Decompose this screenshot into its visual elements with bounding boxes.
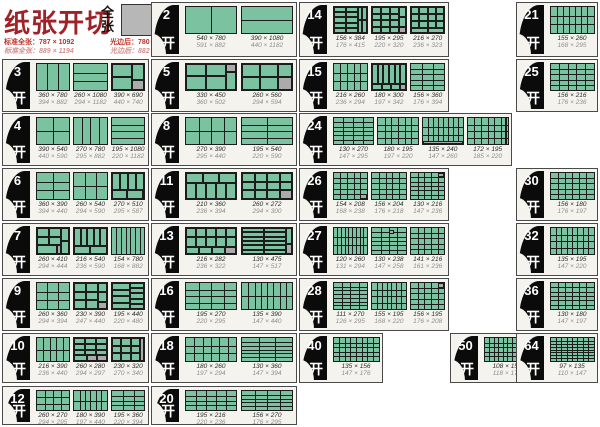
kai-number: 26 [302,173,327,188]
diagram-column: 260 × 360294 × 394 [34,282,72,325]
diagram-column: 180 × 300197 × 342 [370,63,409,106]
sheet-piece [186,183,196,199]
sheet-piece [411,28,428,33]
cut-diagram [111,337,146,362]
cut-diagram [111,63,146,91]
kai-number-label: 24开 [302,116,327,163]
size-standard: 195 × 540 [239,146,295,153]
diagram-column: 270 × 510295 × 587 [109,172,147,215]
cut-diagram [241,227,293,255]
diagram-column: 135 × 240147 × 260 [421,117,466,160]
size-standard: 156 × 270 [239,412,295,419]
cell-25kai: 25开156 × 216176 × 236 [516,59,598,112]
size-large: 236 × 323 [408,42,447,49]
kai-character: 开 [12,401,26,421]
size-large: 591 × 882 [183,42,239,49]
size-large: 220 × 295 [183,318,239,325]
sheet-piece [49,228,61,237]
cut-diagram [185,6,237,34]
kai-number: 36 [519,283,544,298]
cut-diagram [550,227,595,255]
sheet-piece [216,228,226,237]
size-large: 147 × 260 [421,153,466,160]
kai-number-label: 15开 [302,62,327,109]
kai-character: 开 [526,359,540,379]
sheet-piece [362,20,367,33]
cell-21kai: 21开155 × 260168 × 295 [516,2,598,57]
sheet-piece [203,173,220,183]
kai-character: 开 [12,197,26,217]
cut-diagram [185,63,237,91]
size-standard: 195 × 440 [109,311,147,318]
size-large: 294 × 297 [72,370,110,377]
kai-number: 9 [5,283,30,298]
size-large: 220 × 1182 [109,153,147,160]
cut-diagram [73,117,108,145]
diagram-column: 216 × 282236 × 322 [183,227,239,270]
size-large: 126 × 295 [331,318,370,325]
size-large: 161 × 236 [408,263,447,270]
waste-piece [438,173,445,177]
cell-64kai: 64开97 × 135110 × 147 [516,333,598,383]
cut-diagram [377,117,419,145]
sheet-piece [399,17,405,27]
waste-piece [143,190,145,199]
cut-diagram [410,227,446,255]
sheet-piece [86,300,98,309]
sheet-piece [98,292,107,301]
kai-number: 16 [154,283,179,298]
cut-diagram [550,172,595,200]
sheet-piece [255,182,268,191]
kai-number-label: 7开 [5,226,30,273]
size-standard: 216 × 260 [331,92,370,99]
kai-number: 21 [519,7,544,22]
cut-diagram [333,337,380,362]
sheet-piece [255,190,268,199]
size-large: 294 × 1182 [72,99,110,106]
kai-number-label: 40开 [302,336,327,380]
sheet-piece [112,346,121,354]
size-standard: 135 × 240 [421,146,466,153]
diagram-column: 130 × 180147 × 197 [548,282,596,325]
kai-character: 开 [309,252,323,272]
size-large: 176 × 218 [370,208,409,215]
sheet-piece [436,7,444,14]
sheet-piece [346,28,358,33]
size-large: 294 × 295 [34,419,72,426]
sheet-piece [264,250,286,254]
diagram-column: 97 × 135110 × 147 [548,337,596,377]
diagram-column: 195 × 360220 × 394 [109,390,147,426]
kai-character: 开 [309,197,323,217]
sheet-piece [206,76,226,90]
sheet-piece [90,246,106,254]
diagram-column: 130 × 270147 × 295 [331,117,376,160]
size-standard: 216 × 270 [408,35,447,42]
size-large: 110 × 147 [548,370,596,377]
kai-character: 开 [309,307,323,327]
cut-diagram [467,117,509,145]
sheet-piece [280,173,293,182]
sheet-piece [131,353,140,361]
cut-diagram [241,172,293,200]
size-large: 440 × 590 [34,153,72,160]
cut-diagram [73,337,108,362]
cut-diagram [111,390,146,411]
kai-character: 开 [526,252,540,272]
sheet-piece [121,353,130,361]
sheet-piece [186,76,206,90]
size-standard: 156 × 195 [408,311,447,318]
kai-character: 开 [161,88,175,108]
size-standard: 216 × 282 [183,256,239,263]
diagram-column: 390 × 690440 × 740 [109,63,147,106]
size-standard: 155 × 195 [370,311,409,318]
size-standard: 154 × 208 [331,201,370,208]
kai-number: 13 [154,228,179,243]
diagram-column: 230 × 390247 × 440 [72,282,110,325]
size-large: 185 × 220 [465,153,510,160]
cell-5kai: 5开330 × 450360 × 502260 × 560294 × 594 [151,59,297,112]
cell-32kai: 32开135 × 195147 × 220 [516,223,598,276]
cell-28kai: 28开111 × 270126 × 295155 × 195168 × 2201… [299,278,449,331]
diagram-column: 230 × 320270 × 340 [109,337,147,377]
sheet-piece [37,228,49,237]
diagram-column: 155 × 195168 × 220 [370,282,409,325]
diagram-column: 141 × 216161 × 236 [408,227,447,270]
sheet-piece [199,247,212,254]
size-standard: 156 × 204 [370,201,409,208]
size-large: 147 × 295 [331,153,376,160]
size-large: 168 × 882 [109,263,147,270]
kai-character: 开 [12,142,26,162]
diagram-column: 260 × 272294 × 300 [239,172,295,215]
cut-diagram [36,282,71,310]
sheet-piece [226,237,236,246]
sheet-piece [267,190,280,199]
sheet-piece [74,246,90,254]
sheet-piece [226,228,236,237]
size-standard: 260 × 560 [239,92,295,99]
waste-piece [400,84,405,90]
size-standard: 260 × 272 [239,201,295,208]
cut-diagram [36,117,71,145]
kai-character: 开 [161,359,175,379]
cut-diagram [410,172,446,200]
sheet-piece [100,228,107,246]
diagram-column: 260 × 280294 × 297 [72,337,110,377]
kai-number: 25 [519,64,544,79]
size-large: 176 × 208 [408,318,447,325]
diagram-column: 154 × 208168 × 238 [331,172,370,215]
size-standard: 195 × 1080 [109,146,147,153]
kai-character: 开 [161,142,175,162]
cell-30kai: 30开156 × 180176 × 197 [516,168,598,221]
size-standard: 230 × 320 [109,363,147,370]
diagram-column: 130 × 238147 × 258 [370,227,409,270]
sheet-piece [49,237,61,246]
kai-number: 64 [519,338,544,353]
size-standard: 360 × 390 [34,201,72,208]
cell-26kai: 26开154 × 208168 × 238156 × 204176 × 2181… [299,168,449,221]
diagram-column: 216 × 270236 × 323 [408,6,447,49]
diagram-column: 210 × 360236 × 394 [183,172,239,215]
sheet-piece [278,64,292,77]
waste-piece [97,355,107,361]
diagram-column: 156 × 360176 × 394 [408,63,447,106]
kai-character: 开 [12,359,26,379]
cut-diagram [550,282,595,310]
size-standard: 135 × 156 [331,363,381,370]
kai-character: 开 [161,307,175,327]
size-standard: 270 × 510 [109,201,147,208]
diagram-column: 135 × 195147 × 220 [548,227,596,270]
kai-character: 开 [12,88,26,108]
sheet-piece [206,183,216,199]
size-large: 360 × 502 [183,99,239,106]
waste-piece [505,118,508,144]
kai-number: 27 [302,228,327,243]
sheet-piece [206,64,226,76]
sheet-piece [112,303,130,310]
diagram-column: 270 × 390295 × 440 [183,117,239,160]
kai-number: 2 [154,7,179,22]
sheet-piece [334,28,346,33]
diagram-column: 130 × 475147 × 517 [239,227,295,270]
sheet-piece [428,21,436,28]
waste-piece [280,190,293,199]
size-standard: 330 × 450 [183,92,239,99]
size-large: 220 × 320 [370,42,409,49]
cut-diagram [73,63,108,91]
sheet-piece [196,183,206,199]
sheet-piece [121,338,130,346]
kai-number-label: 13开 [154,226,179,273]
cell-8kai: 8开270 × 390295 × 440195 × 540220 × 590 [151,113,297,166]
kai-number-label: 5开 [154,62,179,109]
sheet-piece [255,173,268,182]
cell-18kai: 18开180 × 260197 × 294130 × 360147 × 394 [151,333,297,383]
sheet-piece [436,21,444,28]
cut-diagram [36,337,71,362]
kai-number-label: 30开 [519,171,544,218]
sheet-piece [206,228,216,237]
diagram-column: 260 × 1080294 × 1182 [72,63,110,106]
kai-number-label: 26开 [302,171,327,218]
kai-number-label: 12开 [5,389,30,422]
diagram-column: 130 × 360147 × 394 [239,337,295,377]
cell-14kai: 14开156 × 384176 × 415195 × 295220 × 3202… [299,2,449,57]
cell-6kai: 6开360 × 390394 × 440260 × 540294 × 59027… [2,168,149,221]
waste-piece [225,247,236,254]
sheet-piece [186,247,199,254]
sheet-piece [391,84,400,90]
size-standard: 97 × 135 [548,363,596,370]
size-standard: 195 × 216 [183,412,239,419]
sheet-piece [382,84,391,90]
waste-piece [360,194,367,199]
size-large: 294 × 444 [34,263,72,270]
diagram-column: 390 × 540440 × 590 [34,117,72,160]
kai-number: 11 [154,173,179,188]
diagram-column: 180 × 260197 × 294 [183,337,239,377]
diagram-column: 260 × 410294 × 444 [34,227,72,270]
size-standard: 154 × 780 [109,256,147,263]
cell-11kai: 11开210 × 360236 × 394260 × 272294 × 300 [151,168,297,221]
kai-number-label: 9开 [5,281,30,328]
kai-number: 3 [5,64,30,79]
diagram-column: 135 × 156147 × 176 [331,337,381,377]
size-large: 295 × 440 [183,153,239,160]
cut-diagram [410,6,446,34]
cut-diagram [185,117,237,145]
sheet-piece [372,84,381,90]
sheet-piece [411,21,419,28]
cut-diagram [333,227,369,255]
sheet-piece [112,77,132,90]
cut-diagram [111,117,146,145]
kai-character: 开 [161,401,175,421]
size-large: 176 × 236 [548,99,596,106]
size-large: 295 × 587 [109,208,147,215]
sheet-piece [186,228,196,237]
sheet-piece [131,338,140,346]
kai-number: 7 [5,228,30,243]
size-standard: 390 × 540 [34,146,72,153]
kai-character: 开 [460,359,474,379]
diagram-column: 260 × 270294 × 295 [34,390,72,426]
kai-number: 32 [519,228,544,243]
size-large: 147 × 236 [408,208,447,215]
size-standard: 156 × 360 [408,92,447,99]
cut-diagram [333,63,369,91]
sheet-piece [74,292,86,301]
cut-diagram [371,282,407,310]
size-standard: 156 × 384 [331,35,370,42]
cell-24kai: 24开130 × 270147 × 295180 × 195197 × 2201… [299,113,512,166]
size-standard: 180 × 300 [370,92,409,99]
sheet-piece [112,190,127,199]
cut-diagram [371,63,407,91]
kai-number-label: 2开 [154,5,179,54]
size-standard: 210 × 360 [183,201,239,208]
size-standard: 130 × 270 [331,146,376,153]
size-large: 168 × 220 [370,318,409,325]
sheet-piece [136,173,144,190]
sheet-piece [260,77,278,90]
cut-diagram [371,172,407,200]
size-standard: 216 × 390 [34,363,72,370]
sheet-piece [74,283,86,292]
kai-character: 开 [526,88,540,108]
sheet-piece [419,7,427,14]
cut-diagram [371,6,407,34]
kai-number-label: 32开 [519,226,544,273]
cut-diagram [241,117,293,145]
size-standard: 172 × 195 [465,146,510,153]
kai-character: 开 [309,33,323,53]
sheet-piece [390,27,399,34]
size-large: 236 × 294 [331,99,370,106]
size-standard: 130 × 216 [408,201,447,208]
sheet-piece [242,173,255,182]
cut-diagram [333,117,375,145]
sheet-piece [120,173,128,190]
cut-diagram [333,282,369,310]
kai-number: 5 [154,64,179,79]
size-large: 147 × 220 [548,263,596,270]
cut-diagram [111,172,146,200]
size-standard: 390 × 690 [109,92,147,99]
size-large: 147 × 440 [239,318,295,325]
kai-character: 开 [309,359,323,379]
cell-3kai: 3开360 × 780394 × 882260 × 1080294 × 1182… [2,59,149,112]
size-large: 440 × 1182 [239,42,295,49]
sheet-piece [186,64,206,76]
kai-number-label: 8开 [154,116,179,163]
sheet-piece [206,237,216,246]
diagram-column: 156 × 180176 × 197 [548,172,596,215]
size-standard: 260 × 540 [72,201,110,208]
waste-piece [140,338,144,361]
sheet-piece [121,346,130,354]
kai-number-label: 27开 [302,226,327,273]
kai-number-label: 21开 [519,5,544,54]
diagram-column: 180 × 390197 × 440 [72,390,110,426]
size-large: 147 × 176 [331,370,381,377]
size-standard: 135 × 195 [548,256,596,263]
waste-piece [132,80,144,90]
kai-number: 6 [5,173,30,188]
size-large: 294 × 590 [72,208,110,215]
size-standard: 130 × 475 [239,256,295,263]
sheet-piece [372,27,381,34]
size-large: 295 × 882 [72,153,110,160]
cut-diagram [185,337,237,362]
size-standard: 130 × 360 [239,363,295,370]
cell-7kai: 7开260 × 410294 × 444216 × 540236 × 59015… [2,223,149,276]
cell-9kai: 9开260 × 360294 × 394230 × 390247 × 44019… [2,278,149,331]
kai-character: 开 [526,33,540,53]
cut-diagram [185,390,237,411]
diagram-column: 360 × 390394 × 440 [34,172,72,215]
kai-character: 开 [161,197,175,217]
cell-2kai: 2开540 × 780591 × 882390 × 1080440 × 1182 [151,2,297,57]
sheet-piece [242,182,255,191]
diagram-column: 270 × 780295 × 882 [72,117,110,160]
size-standard: 260 × 360 [34,311,72,318]
waste-piece [226,64,236,72]
sheet-piece [86,283,98,292]
size-large: 147 × 517 [239,263,295,270]
kai-number: 4 [5,118,30,133]
size-large: 220 × 590 [239,153,295,160]
sheet-piece [112,64,132,77]
kai-number: 24 [302,118,327,133]
sheet-piece [419,21,427,28]
cut-diagram [241,63,293,91]
cell-16kai: 16开195 × 270220 × 295135 × 390147 × 440 [151,278,297,331]
kai-number-label: 4开 [5,116,30,163]
kai-number-label: 20开 [154,389,179,422]
cut-diagram [241,390,293,411]
sheet-piece [212,247,225,254]
size-large: 220 × 236 [183,419,239,426]
waste-piece [389,230,394,234]
cut-diagram [422,117,464,145]
size-standard: 155 × 260 [548,35,596,42]
